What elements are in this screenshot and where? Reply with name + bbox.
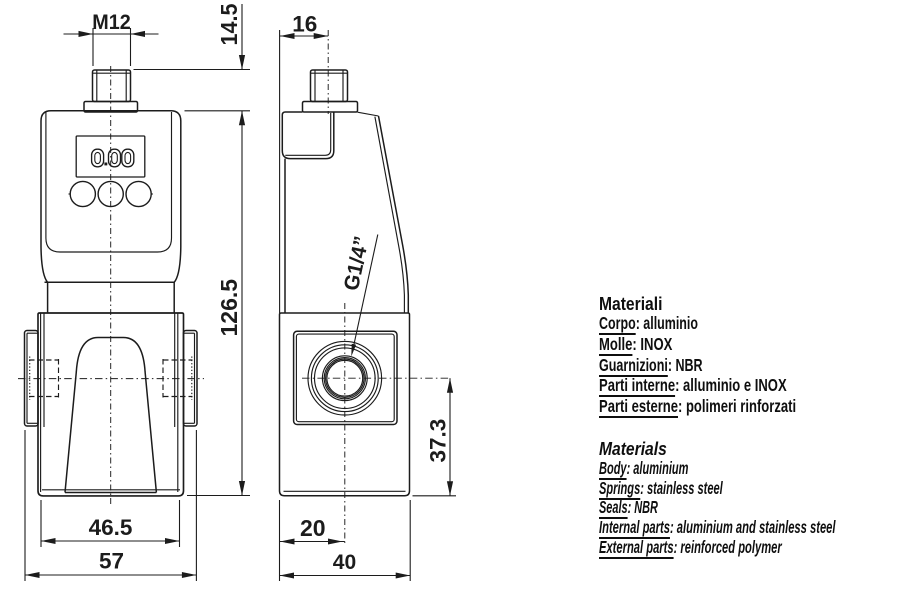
svg-text:16: 16 — [292, 12, 317, 37]
svg-text:46.5: 46.5 — [89, 515, 133, 540]
svg-text:37.3: 37.3 — [426, 419, 451, 463]
svg-text:40: 40 — [333, 550, 356, 574]
svg-text:M12: M12 — [92, 10, 130, 34]
svg-text:14.5: 14.5 — [217, 4, 243, 46]
svg-text:20: 20 — [300, 515, 326, 541]
svg-text:G1/4”: G1/4” — [340, 234, 374, 293]
svg-text:57: 57 — [99, 549, 124, 574]
svg-text:126.5: 126.5 — [216, 279, 242, 337]
